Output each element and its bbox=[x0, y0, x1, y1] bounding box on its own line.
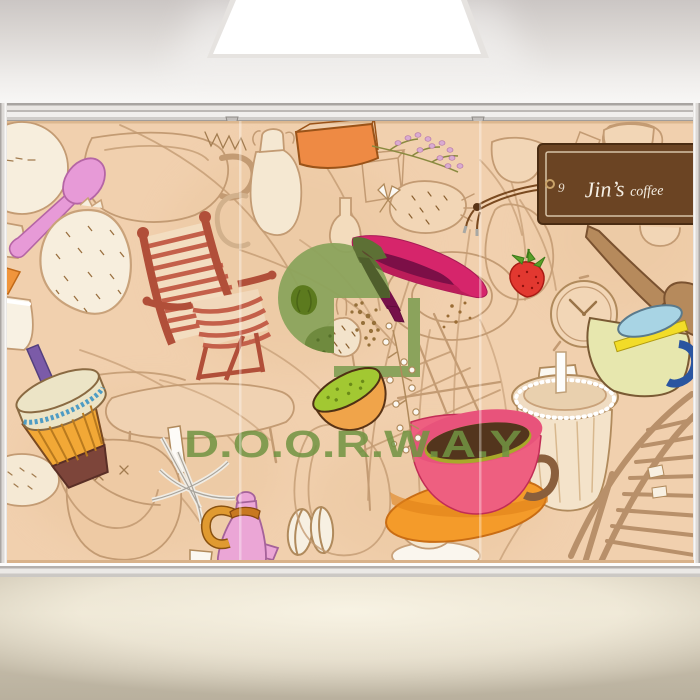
svg-text:9: 9 bbox=[558, 180, 565, 195]
svg-text:D.O.O.R.W.A.Y: D.O.O.R.W.A.Y bbox=[184, 424, 522, 466]
